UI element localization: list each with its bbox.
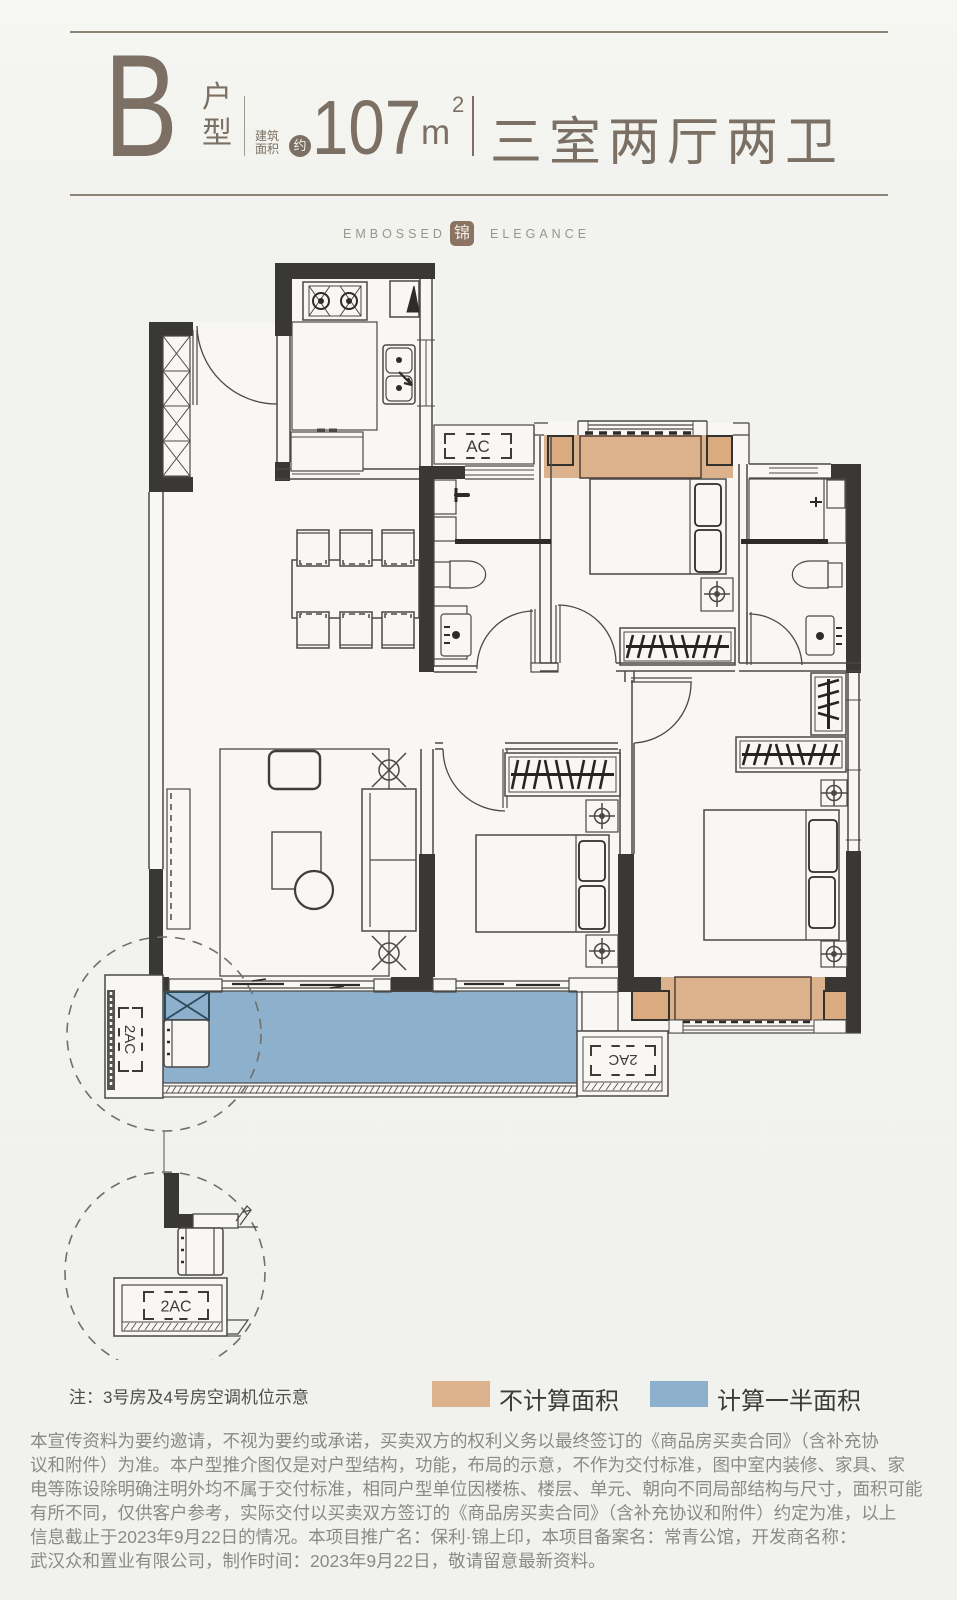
svg-text:AC: AC [466,437,490,456]
svg-text:2AC: 2AC [121,1025,138,1054]
svg-text:2AC: 2AC [160,1298,191,1315]
svg-text:2AC: 2AC [608,1051,637,1068]
